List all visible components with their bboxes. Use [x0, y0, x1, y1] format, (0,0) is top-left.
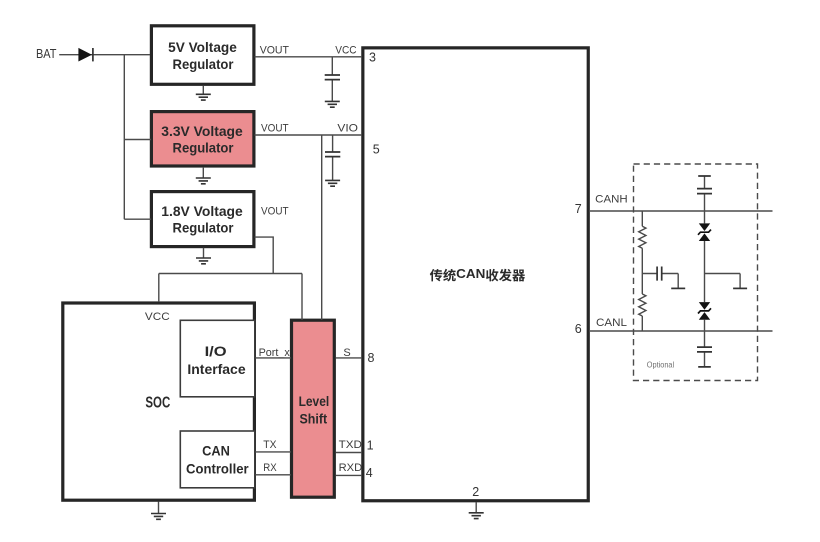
svg-text:CANH: CANH: [595, 193, 627, 205]
svg-text:TX: TX: [263, 439, 277, 451]
svg-text:5: 5: [373, 142, 380, 156]
svg-text:3: 3: [369, 51, 376, 65]
svg-text:Shift: Shift: [300, 410, 328, 426]
svg-text:2: 2: [472, 485, 479, 499]
svg-text:3.3V Voltage: 3.3V Voltage: [161, 123, 243, 139]
svg-text:CANL: CANL: [596, 317, 627, 329]
svg-text:BAT: BAT: [36, 47, 57, 61]
svg-text:CAN: CAN: [202, 443, 230, 459]
svg-text:Optional: Optional: [647, 359, 674, 369]
svg-text:VCC: VCC: [335, 44, 356, 56]
svg-text:Regulator: Regulator: [173, 56, 235, 72]
svg-text:Port_x: Port_x: [259, 347, 291, 359]
svg-text:VIO: VIO: [337, 123, 358, 135]
svg-text:CAN: CAN: [456, 266, 485, 281]
svg-text:Regulator: Regulator: [173, 220, 235, 236]
svg-text:VOUT: VOUT: [260, 44, 290, 56]
svg-text:4: 4: [366, 466, 373, 480]
svg-text:TXD: TXD: [339, 439, 362, 451]
svg-text:8: 8: [368, 351, 375, 365]
svg-text:1.8V Voltage: 1.8V Voltage: [161, 203, 243, 219]
svg-text:RX: RX: [263, 462, 277, 474]
svg-text:RXD: RXD: [339, 462, 363, 474]
svg-text:7: 7: [575, 202, 582, 216]
svg-text:6: 6: [575, 322, 582, 336]
svg-text:VOUT: VOUT: [261, 123, 289, 135]
svg-text:Level: Level: [299, 393, 330, 409]
svg-text:SOC: SOC: [145, 394, 170, 411]
svg-text:S: S: [343, 347, 350, 359]
svg-text:Regulator: Regulator: [173, 139, 235, 155]
svg-text:I/O: I/O: [205, 343, 227, 359]
svg-text:Controller: Controller: [186, 461, 249, 477]
svg-text:Interface: Interface: [187, 361, 245, 377]
svg-text:VCC: VCC: [145, 311, 170, 323]
svg-text:1: 1: [367, 439, 374, 453]
svg-text:VOUT: VOUT: [261, 206, 289, 218]
svg-text:5V Voltage: 5V Voltage: [168, 39, 237, 55]
